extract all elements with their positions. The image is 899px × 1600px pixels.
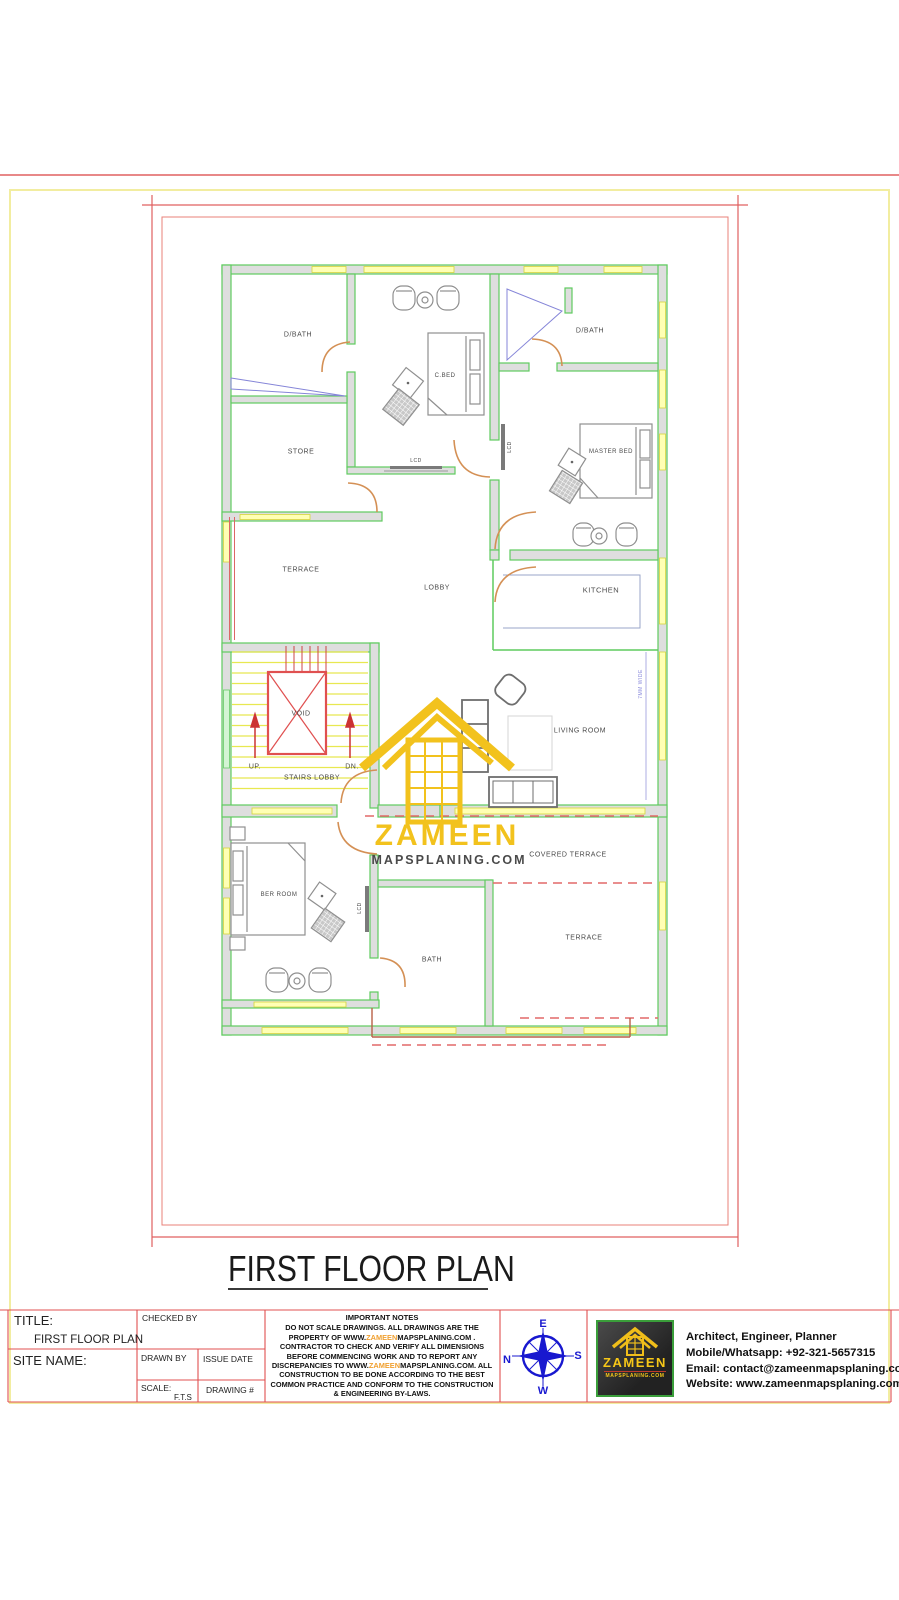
- title-label: TITLE:: [14, 1313, 53, 1328]
- room-label-living-room: LIVING ROOM: [554, 728, 606, 735]
- stairs-lobby-label: STAIRS LOBBY: [284, 775, 340, 782]
- sitting-set-top: [393, 286, 459, 310]
- checked-by-label: CHECKED BY: [142, 1313, 197, 1323]
- logo-wordmark: ZAMEEN: [603, 1356, 667, 1369]
- compass-west-label: W: [538, 1385, 548, 1397]
- notes-brand-1: ZAMEEN: [366, 1333, 397, 1342]
- room-label-covered-terrace: COVERED TERRACE: [529, 852, 606, 859]
- drawing-sheet: D/BATH C.BED D/BATH STORE MASTER BED TER…: [0, 0, 899, 1600]
- room-label-terrace-lower: TERRACE: [566, 935, 603, 942]
- room-label-dbath-right: D/BATH: [576, 328, 604, 335]
- lcd-label-cbed: LCD: [410, 458, 422, 464]
- compass-east-label: E: [539, 1318, 546, 1330]
- stair-window: [224, 690, 230, 768]
- room-label-terrace-upper: TERRACE: [283, 567, 320, 574]
- room-label-ber-room: BER ROOM: [261, 892, 298, 898]
- contact-email: Email: contact@zameenmapsplaning.com: [686, 1362, 899, 1378]
- logo-divider: [604, 1371, 666, 1372]
- logo-domain: MAPSPLANING.COM: [606, 1373, 665, 1379]
- site-name-label: SITE NAME:: [13, 1353, 87, 1368]
- compass-north-label: N: [503, 1354, 511, 1366]
- kitchen-counter: [503, 575, 640, 628]
- notes-heading: IMPORTANT NOTES: [268, 1313, 496, 1322]
- zameen-logo: ZAMEEN MAPSPLANING.COM: [596, 1320, 674, 1397]
- watermark-domain: MAPSPLANING.COM: [372, 853, 527, 867]
- stairs-void-label: VOID: [291, 711, 310, 718]
- notes-body: DO NOT SCALE DRAWINGS. ALL DRAWINGS ARE …: [268, 1323, 496, 1398]
- important-notes: IMPORTANT NOTES DO NOT SCALE DRAWINGS. A…: [268, 1313, 496, 1399]
- room-label-dbath-left: D/BATH: [284, 332, 312, 339]
- compass-south-label: S: [574, 1350, 581, 1362]
- drawn-by-label: DRAWN BY: [141, 1353, 187, 1363]
- scale-label: SCALE:: [141, 1383, 171, 1393]
- stairs-dn-label: DN.: [345, 764, 359, 771]
- sitting-set-kitchen: [573, 523, 637, 546]
- compass-icon: [512, 1328, 574, 1386]
- room-label-lobby: LOBBY: [424, 585, 450, 592]
- room-label-cbed: C.BED: [435, 373, 456, 379]
- contact-role: Architect, Engineer, Planner: [686, 1330, 899, 1346]
- contact-info: Architect, Engineer, Planner Mobile/What…: [686, 1330, 899, 1393]
- notes-brand-2: ZAMEEN: [369, 1361, 400, 1370]
- watermark-zameen: ZAMEEN: [375, 819, 520, 853]
- wall-note-label: 7MM WIDE: [638, 669, 644, 699]
- room-label-master-bed: MASTER BED: [589, 449, 633, 455]
- title-value: FIRST FLOOR PLAN: [34, 1334, 143, 1346]
- issue-date-label: ISSUE DATE: [203, 1354, 253, 1364]
- room-label-bath: BATH: [422, 957, 442, 964]
- sitting-set-ber: [266, 968, 331, 992]
- heading-underline: [228, 1288, 488, 1290]
- thin-partitions: [493, 560, 658, 650]
- drawing-number-label: DRAWING #: [206, 1385, 254, 1395]
- room-label-kitchen: KITCHEN: [583, 586, 619, 595]
- stairs-up-label: UP.: [249, 764, 261, 771]
- lcd-label-master: LCD: [507, 441, 513, 453]
- contact-mobile: Mobile/Whatsapp: +92-321-5657315: [686, 1346, 899, 1362]
- logo-house-icon: [611, 1324, 659, 1356]
- page-title: FIRST FLOOR PLAN: [228, 1248, 515, 1290]
- contact-website: Website: www.zameenmapsplaning.com: [686, 1377, 899, 1393]
- room-label-store: STORE: [288, 449, 315, 456]
- scale-value: F.T.S: [174, 1393, 192, 1402]
- lcd-label-ber: LCD: [357, 902, 363, 914]
